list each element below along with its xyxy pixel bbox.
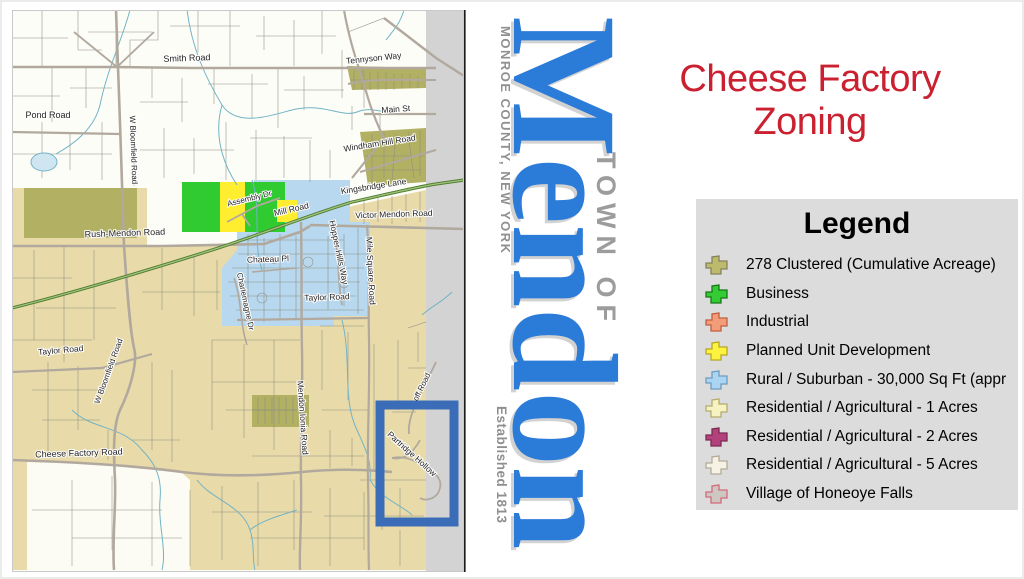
legend-item-label: Planned Unit Development [746, 342, 930, 360]
legend-item: Residential / Agricultural - 2 Acres [696, 423, 1018, 452]
zone-business-west [182, 182, 220, 232]
map-road-label: Smith Road [163, 52, 210, 64]
legend-item: Village of Honeoye Falls [696, 480, 1018, 509]
legend-item-label: 278 Clustered (Cumulative Acreage) [746, 256, 996, 274]
zone-swatch-icon [704, 397, 730, 419]
zone-swatch-icon [704, 369, 730, 391]
zoning-map: Smith RoadPond RoadTennyson WayMain StWi… [12, 10, 467, 572]
legend-item-label: Village of Honeoye Falls [746, 485, 913, 503]
legend-item: Residential / Agricultural - 5 Acres [696, 451, 1018, 480]
map-area: Smith RoadPond RoadTennyson WayMain StWi… [12, 10, 467, 572]
zone-swatch-icon [704, 283, 730, 305]
map-road-label: Main St [381, 103, 411, 115]
legend-item-label: Rural / Suburban - 30,000 Sq Ft (appr [746, 371, 1006, 389]
pond [31, 153, 57, 171]
legend-title: Legend [696, 207, 1018, 241]
map-road-label: Pond Road [25, 110, 70, 120]
legend-item: 278 Clustered (Cumulative Acreage) [696, 251, 1018, 280]
legend-item-label: Industrial [746, 313, 809, 331]
legend-item-label: Residential / Agricultural - 1 Acres [746, 399, 978, 417]
map-road-label: Chateau Pl [247, 253, 289, 264]
legend-items: 278 Clustered (Cumulative Acreage) Busin… [696, 251, 1018, 508]
zone-swatch-icon [704, 454, 730, 476]
legend-item-label: Residential / Agricultural - 2 Acres [746, 428, 978, 446]
zone-swatch-icon [704, 426, 730, 448]
map-road-label: Taylor Road [304, 291, 350, 303]
zone-swatch-icon [704, 311, 730, 333]
legend-item: Industrial [696, 308, 1018, 337]
logo-established-text: Established 1813 [494, 406, 509, 524]
logo-town-of-text: TOWN OF [590, 152, 621, 328]
zone-swatch-icon [704, 254, 730, 276]
page-title-line1: Cheese Factory [642, 58, 978, 101]
zone-white-southwest [27, 462, 190, 570]
legend-item: Business [696, 280, 1018, 309]
legend-item-label: Business [746, 285, 809, 303]
zone-swatch-icon [704, 340, 730, 362]
zone-swatch-icon [704, 483, 730, 505]
page-title-line2: Zoning [642, 101, 978, 144]
zoning-map-slide: Smith RoadPond RoadTennyson WayMain StWi… [0, 0, 1024, 579]
legend-item-label: Residential / Agricultural - 5 Acres [746, 456, 978, 474]
legend-item: Residential / Agricultural - 1 Acres [696, 394, 1018, 423]
legend-panel: Legend 278 Clustered (Cumulative Acreage… [696, 199, 1018, 510]
page-title: Cheese Factory Zoning [642, 58, 978, 144]
legend-item: Planned Unit Development [696, 337, 1018, 366]
legend-item: Rural / Suburban - 30,000 Sq Ft (appr [696, 365, 1018, 394]
